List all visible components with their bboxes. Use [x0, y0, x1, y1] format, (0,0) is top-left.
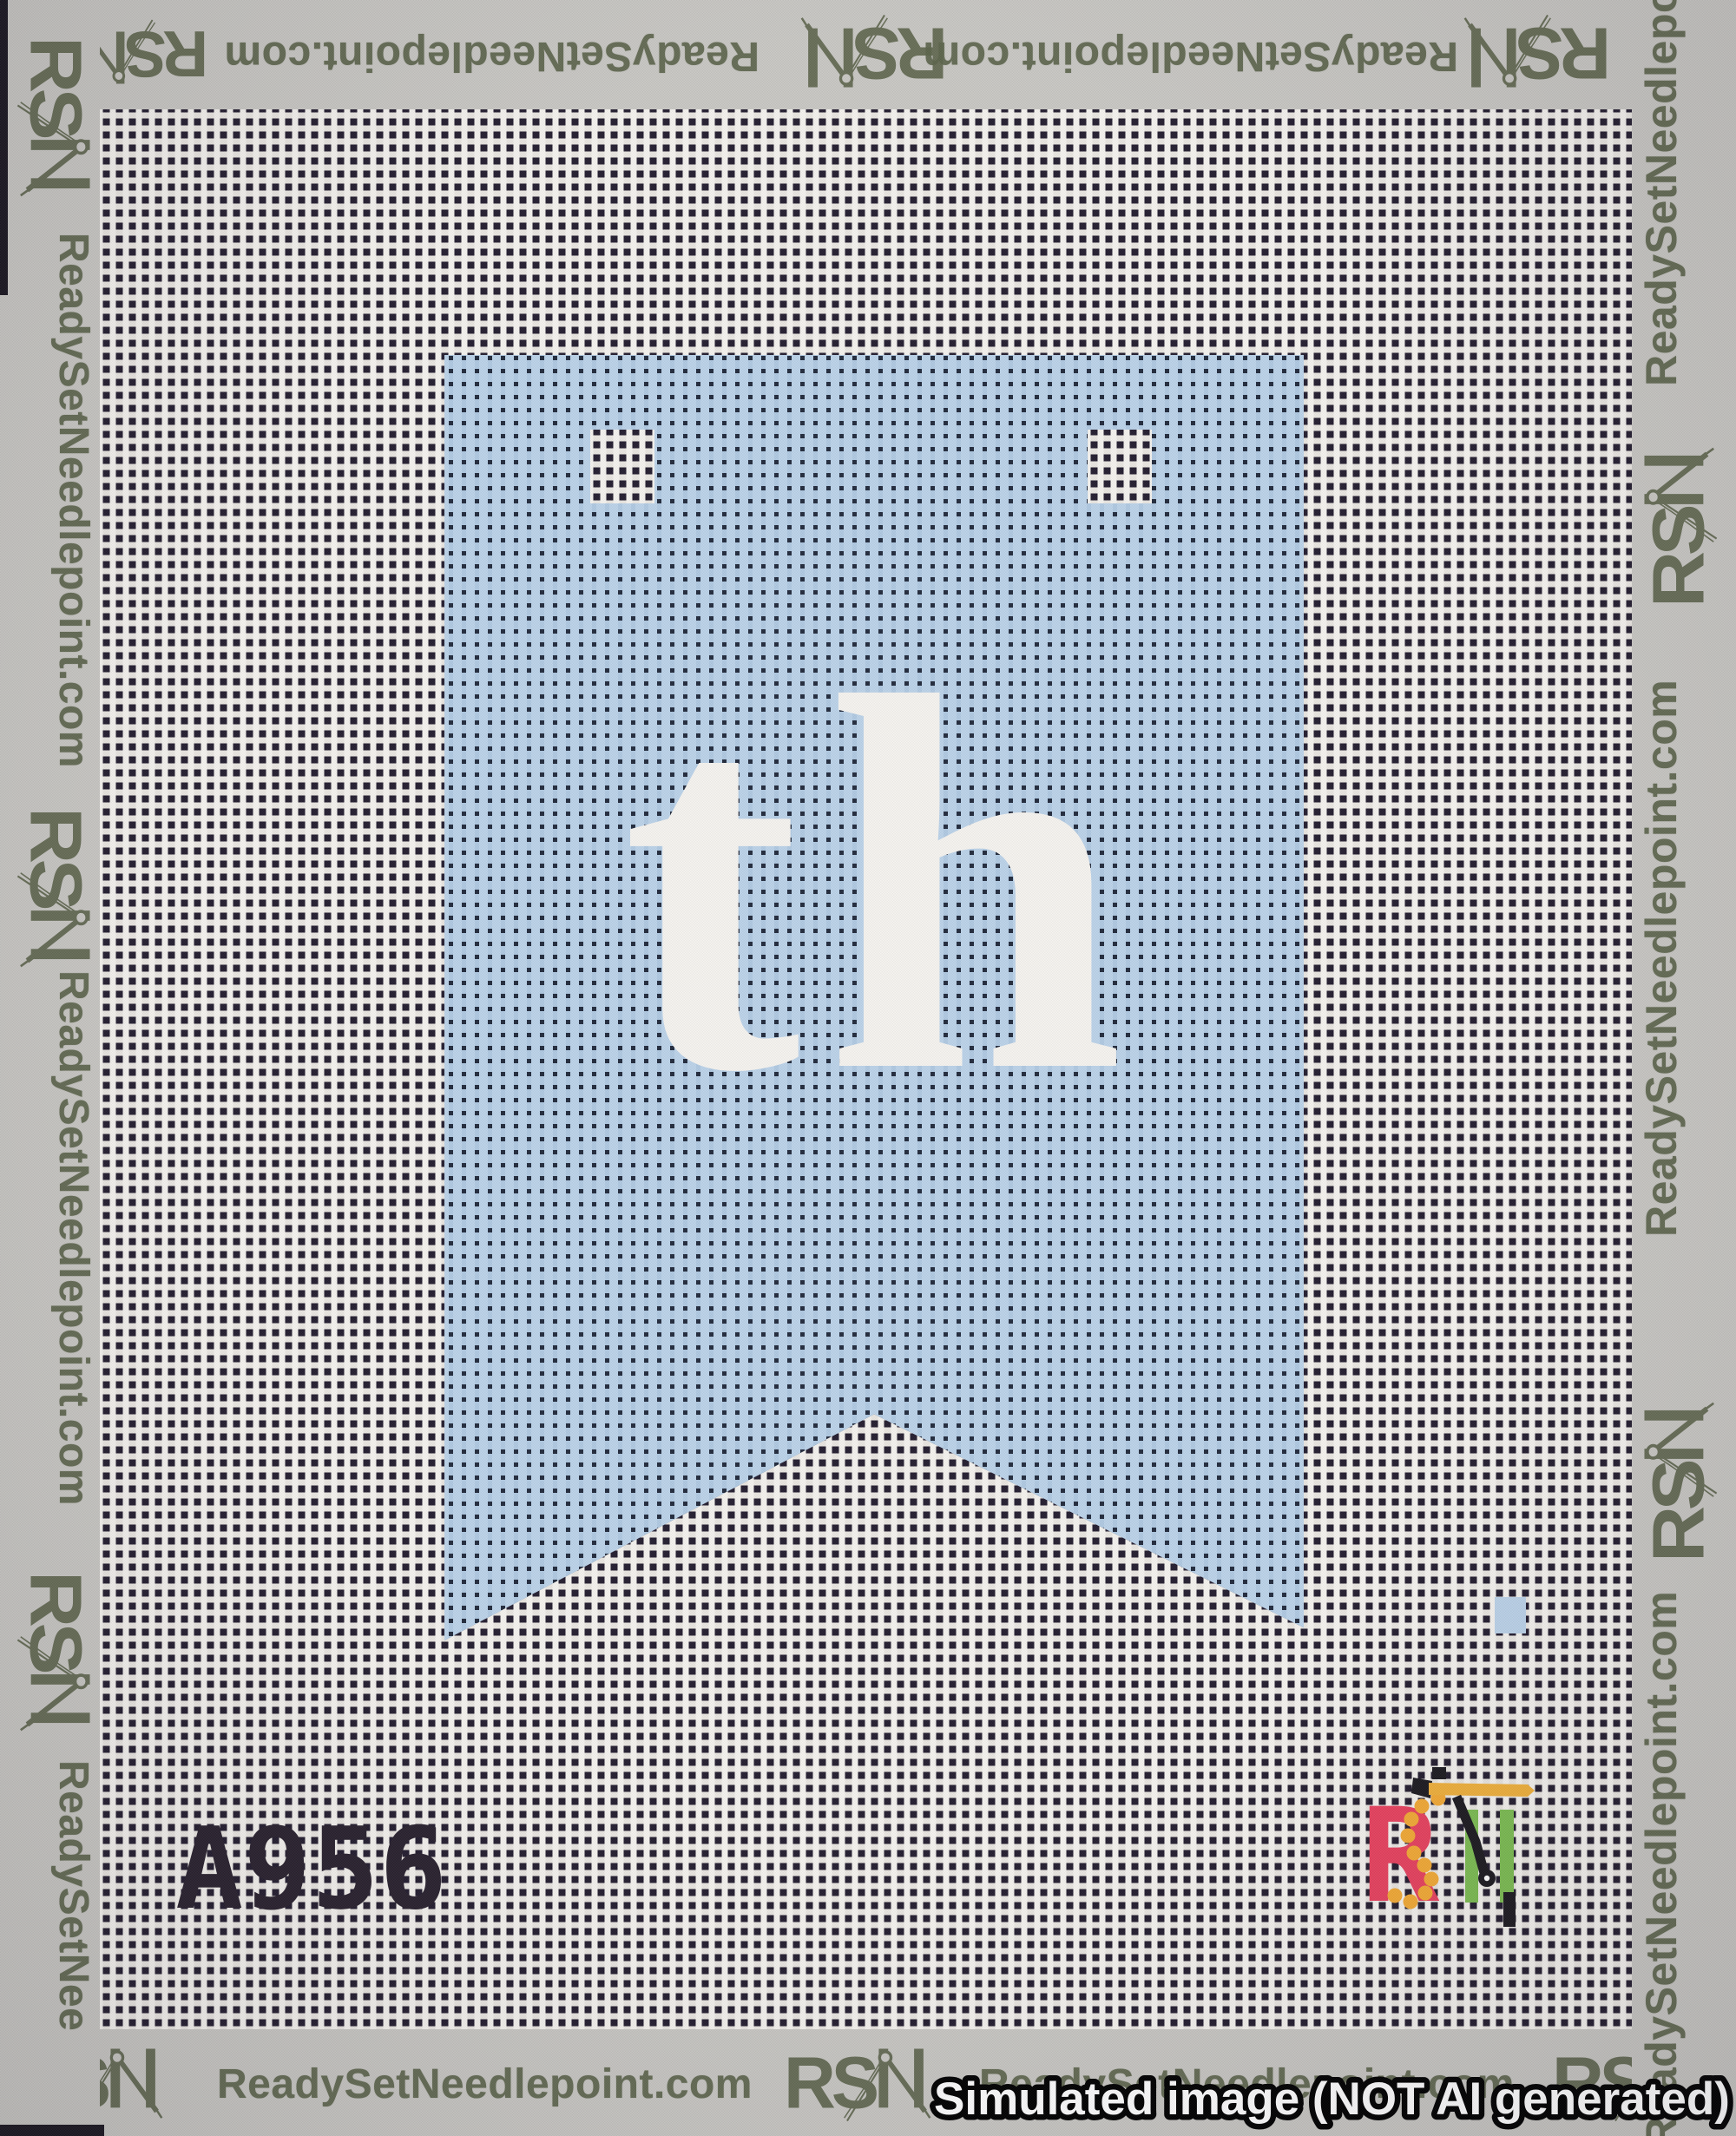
svg-text:S: S	[15, 859, 97, 911]
svg-text:S: S	[15, 89, 97, 141]
watermark: Simulated image (NOT AI generated)	[927, 2062, 1736, 2136]
svg-text:R: R	[1637, 551, 1720, 608]
monogram-text: th	[621, 562, 1148, 1208]
selvage-top: R S ReadySetNeedlepoint.com R S ReadySet…	[0, 0, 1736, 109]
svg-text:R: R	[15, 1571, 97, 1627]
brand-url-partial-text: ReadySetNee	[49, 1760, 97, 2029]
svg-text:S: S	[852, 12, 900, 95]
rsn-stitched-logo-icon: R	[1356, 1764, 1540, 1930]
selvage-right: ReadySetNeedlepoint.com R S ReadySetNeed…	[1632, 0, 1736, 2136]
svg-text:R: R	[162, 17, 208, 90]
rsn-logo-icon: R S	[1637, 447, 1720, 608]
grommet-hole-left	[590, 430, 654, 503]
svg-text:S: S	[1516, 12, 1563, 95]
svg-text:S: S	[1637, 1458, 1720, 1510]
brand-url-text: ReadySetNeedlepoint.com	[937, 31, 1458, 80]
brand-url-text: ReadySetNeedlepoint.com	[49, 970, 97, 1539]
svg-text:S: S	[1637, 503, 1720, 555]
brand-url-text: ReadySetNeedlepoint.com	[49, 233, 97, 788]
svg-text:R: R	[1559, 12, 1611, 95]
svg-text:R: R	[15, 807, 97, 864]
brand-url-text: ReadySetNeedlepoint.com	[1637, 1593, 1686, 2136]
grommet-hole-right	[1088, 430, 1152, 503]
svg-text:R: R	[15, 36, 97, 93]
watermark-text: Simulated image (NOT AI generated)	[934, 2074, 1730, 2125]
rsn-logo-icon: R S	[1637, 1402, 1720, 1562]
svg-text:S: S	[124, 17, 167, 90]
svg-text:S: S	[15, 1623, 97, 1675]
brand-url-text: ReadySetNeedlepoint.com	[1637, 0, 1686, 386]
needlepoint-canvas-scan: th A956 R R S ReadySetNeedlepoint	[0, 0, 1736, 2136]
rsn-logo-icon: R S	[1463, 12, 1611, 95]
svg-text:R: R	[1637, 1506, 1720, 1562]
rsn-logo-icon: R S	[15, 807, 97, 968]
svg-text:R: R	[784, 2041, 836, 2124]
sku-code: A956	[175, 1812, 447, 1925]
photo-edge-sliver	[0, 2125, 104, 2136]
paint-speck	[1495, 1597, 1526, 1633]
svg-text:S: S	[832, 2041, 879, 2124]
brand-url-text: ReadySetNeedlepoint.com	[213, 31, 759, 80]
rsn-logo-icon: R S	[784, 2041, 931, 2124]
rsn-logo-icon: R S	[15, 1571, 97, 1732]
photo-edge-sliver	[0, 0, 8, 295]
brand-url-text: ReadySetNeedlepoint.com	[1637, 681, 1686, 1237]
rsn-logo-icon: R S	[15, 36, 97, 197]
selvage-left: R S ReadySetNeedlepoint.com R S ReadySet…	[0, 0, 100, 2136]
brand-url-text: ReadySetNeedlepoint.com	[217, 2060, 751, 2109]
